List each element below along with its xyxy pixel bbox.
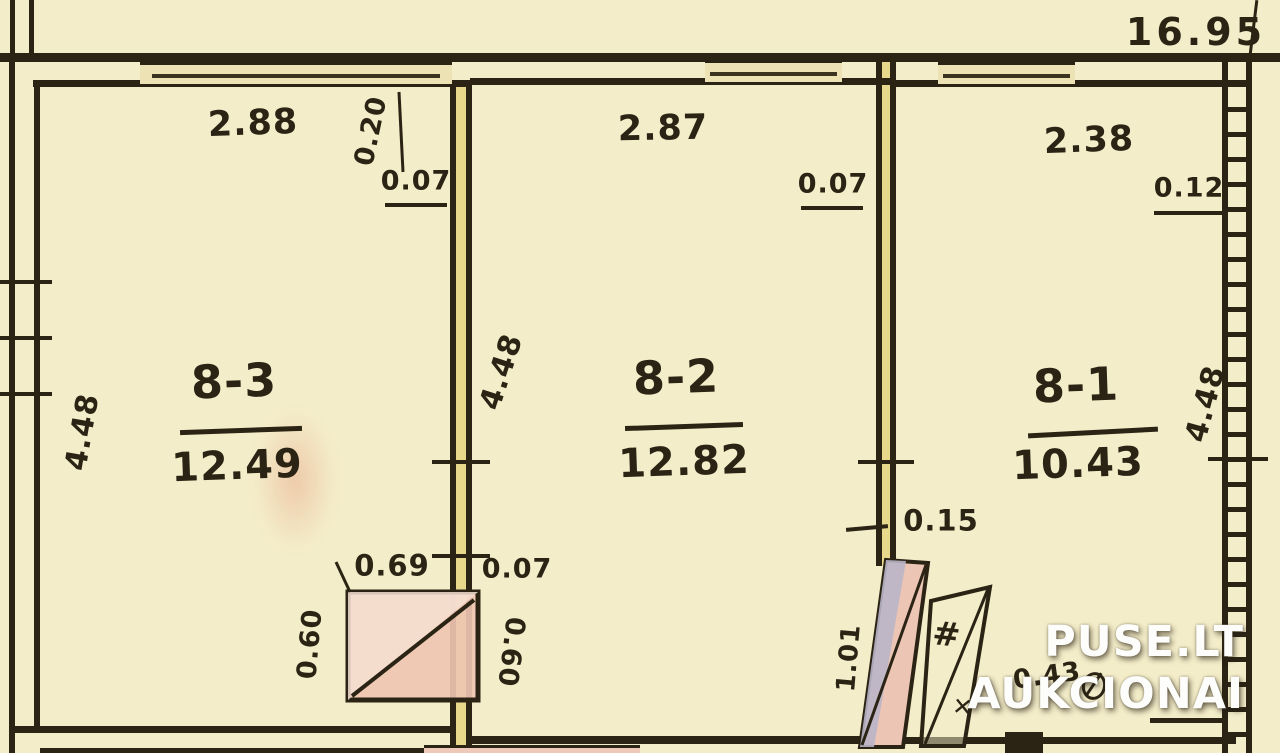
room81-width-label: 2.38 xyxy=(1043,122,1135,160)
room81-area: 10.43 xyxy=(1012,442,1145,487)
stove-depth-left-label: 0.60 xyxy=(293,608,326,681)
stove-side-label: 1.01 xyxy=(833,623,865,693)
stove-depth-right-label: 0.60 xyxy=(493,615,528,688)
watermark-line1: PUSE.LT xyxy=(967,616,1244,668)
floorplan-canvas: 16.95 2.88 2.87 2.38 0.20 0.07 0.07 0.12… xyxy=(0,0,1280,753)
room82-area: 12.82 xyxy=(618,440,751,485)
room82-number: 8-2 xyxy=(632,353,720,402)
room83-number: 8-3 xyxy=(190,357,278,406)
partition-mid-label: 0.07 xyxy=(798,171,869,198)
watermark: PUSE.LT AUKCIONAI xyxy=(967,616,1244,721)
stove-a-corner-tick xyxy=(336,562,350,592)
total-length-label: 16.95 xyxy=(1126,13,1266,51)
room83-area: 12.49 xyxy=(171,444,304,489)
room81-number: 8-1 xyxy=(1032,361,1120,410)
ledge-label: 0.15 xyxy=(903,507,979,536)
room82-width-label: 2.87 xyxy=(618,111,709,148)
watermark-line2: AUKCIONAI xyxy=(967,668,1244,720)
stove-partition-label: 0.07 xyxy=(482,556,553,583)
heater-hash-mark: # xyxy=(931,616,963,652)
room83-width-label: 2.88 xyxy=(207,105,299,143)
duct-line xyxy=(399,92,403,172)
stove-width-label: 0.69 xyxy=(354,552,430,581)
partition-right-label: 0.12 xyxy=(1154,175,1225,202)
partition-left-label: 0.07 xyxy=(381,168,452,195)
